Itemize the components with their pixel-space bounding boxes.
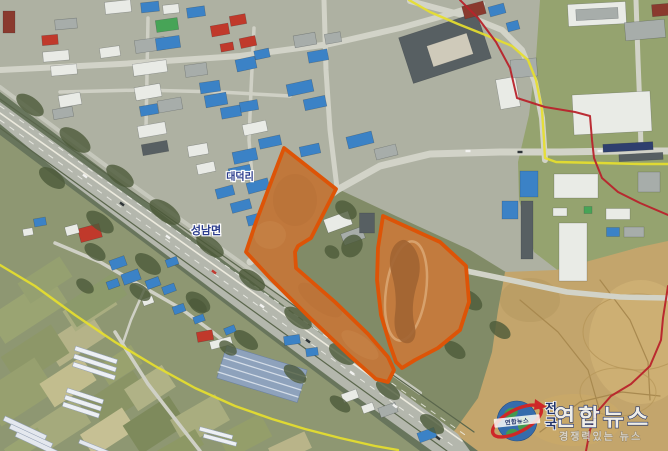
yonhap-watermark: 연합뉴스 전 국 연합뉴스 경쟁력있는 뉴스 [488,399,651,444]
building [51,64,78,76]
building [521,201,533,259]
building [55,18,78,30]
watermark-title: 연합뉴스 [554,404,651,430]
building [42,34,59,45]
map-generated-layers: 대덕리성남면 [0,0,668,451]
vehicle [598,150,603,152]
map-canvas: 대덕리성남면 연합뉴스 전 국 연합뉴스 경쟁력있는 뉴스 [0,0,668,451]
vehicle [518,151,523,153]
building [576,7,619,20]
building [607,228,620,237]
building [554,174,598,198]
building [360,213,375,233]
building [624,227,644,237]
building [163,4,180,15]
building [306,347,319,357]
township-label-seongnammyeon: 성남면 [191,223,221,237]
building [624,19,665,40]
building [553,208,567,216]
building [638,172,660,192]
building [572,91,652,135]
building [141,1,160,13]
building [606,209,630,220]
building [584,207,592,214]
vehicle [466,150,471,152]
satellite-map: 대덕리성남면 연합뉴스 전 국 연합뉴스 경쟁력있는 뉴스 [0,0,668,451]
building [104,0,131,14]
building [502,201,518,219]
watermark-slogan: 경쟁력있는 뉴스 [559,430,642,443]
building [22,228,33,237]
building [652,3,668,17]
building [33,217,46,227]
building [559,223,587,281]
building [43,50,70,62]
building [186,6,205,18]
village-label-daedeokri: 대덕리 [226,170,254,183]
building [520,171,538,197]
building [283,334,300,345]
building [3,11,15,33]
